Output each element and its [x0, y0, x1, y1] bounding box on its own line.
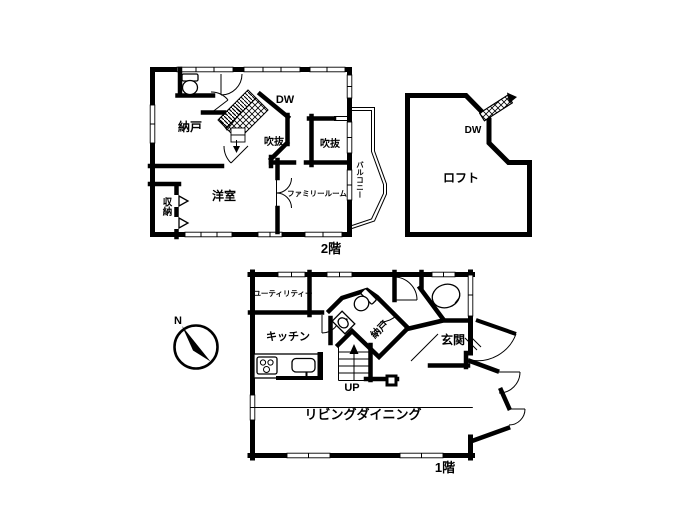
room-label-nando-2f: 納戸 — [178, 119, 202, 134]
door-arc — [221, 74, 242, 95]
loft-ladder-rungs — [480, 95, 513, 121]
stairs-down-arrow — [233, 146, 240, 153]
compass-icon: N — [174, 315, 217, 369]
room-label-living-dining: リビングダイニング — [304, 407, 421, 422]
room-label-kitchen: キッチン — [266, 330, 310, 343]
room-label-shuno: 収納 — [161, 196, 173, 217]
floor-2f-plan: 納戸 DW 吹抜 吹抜 洋室 ファミリールーム 収納 バルコニー 2階 — [150, 67, 387, 256]
sliding-door-arrow — [179, 196, 188, 206]
room-label-family-room: ファミリールーム — [287, 189, 347, 198]
compass-north-arrow — [182, 326, 211, 362]
stairs-up-arrow — [350, 344, 359, 354]
sink-icon — [292, 359, 315, 373]
door-arc — [394, 277, 417, 300]
sliding-door-arrow — [179, 218, 188, 228]
label-dw-loft: DW — [465, 125, 482, 136]
label-dw-2f: DW — [276, 94, 295, 106]
bay-door-arc — [509, 409, 525, 425]
toilet-icon — [182, 74, 198, 95]
room-label-genkan: 玄関 — [441, 332, 465, 347]
room-label-fukinuke-b: 吹抜 — [320, 137, 341, 150]
compass-north-label: N — [174, 315, 182, 327]
room-label-fukinuke-a: 吹抜 — [264, 135, 285, 148]
floor-label-2f: 2階 — [321, 241, 341, 256]
loft-outer-wall — [408, 96, 530, 235]
kitchen-counter — [254, 352, 323, 380]
2f-yoshitsu-walls — [150, 146, 248, 166]
utility-room — [250, 272, 340, 333]
label-up: UP — [344, 382, 359, 394]
room-label-yoshitsu: 洋室 — [212, 188, 236, 203]
floorplan-canvas: 納戸 DW 吹抜 吹抜 洋室 ファミリールーム 収納 バルコニー 2階 DW ロ… — [0, 0, 700, 525]
2f-toilet-room — [178, 69, 243, 96]
stove-icon — [257, 357, 277, 374]
room-label-loft: ロフト — [443, 171, 479, 185]
door-leaf — [231, 146, 248, 163]
room-label-utility: ユーティリティー — [253, 289, 312, 298]
door-arc — [224, 146, 231, 163]
loft-plan: DW ロフト — [408, 93, 530, 235]
floor-label-1f: 1階 — [435, 460, 455, 475]
front-door-arc — [470, 334, 516, 361]
floor-1f-plan: 納戸 ユーティリティー キッチン 玄関 — [250, 272, 525, 475]
front-door-leaf — [476, 320, 516, 334]
floorplan-page: { "floor2": { "name": "2階", "stairs_labe… — [0, 0, 700, 525]
room-label-balcony: バルコニー — [355, 161, 364, 199]
